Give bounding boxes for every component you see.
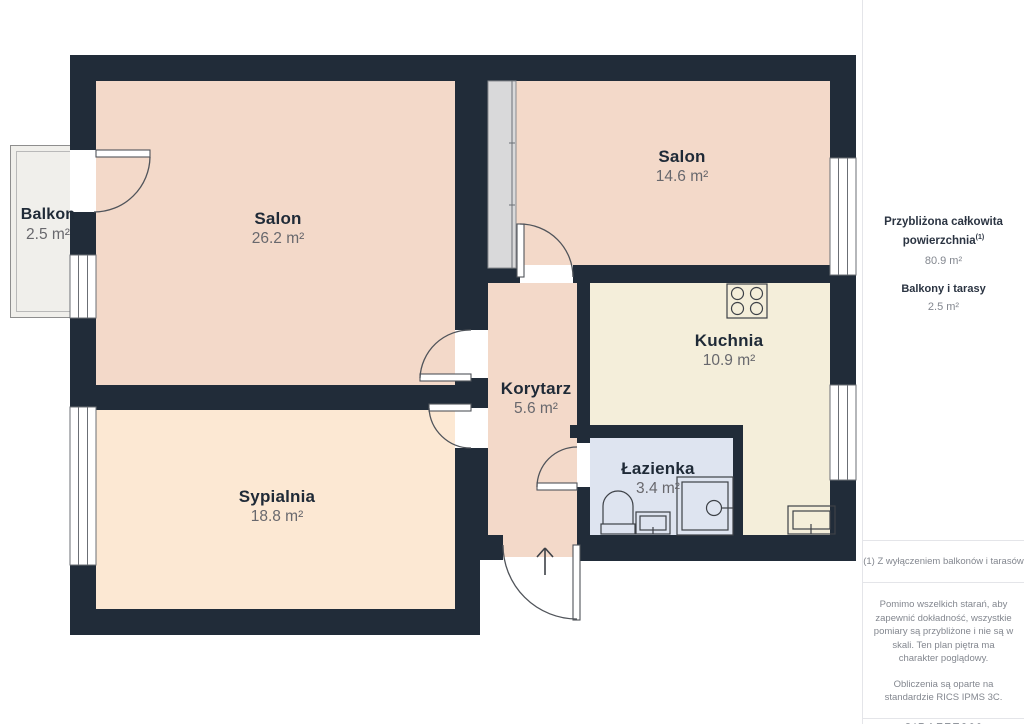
wall-segment	[570, 425, 743, 438]
room-label-korytarz: Korytarz 5.6 m²	[501, 378, 572, 419]
disclaimer-text-1: Pomimo wszelkich starań, aby zapewnić do…	[873, 598, 1014, 666]
floorplan: Salon 26.2 m² Sypialnia 18.8 m² Salon 14…	[0, 0, 862, 724]
total-area-value: 80.9 m²	[871, 255, 1016, 267]
wall-segment	[70, 609, 480, 635]
wall-segment	[573, 265, 830, 283]
wall-segment	[577, 487, 590, 535]
wall-segment	[577, 535, 856, 561]
balconies-label: Balkony i tarasy	[871, 283, 1016, 295]
area-summary: Przybliżona całkowita powierzchnia(1) 80…	[863, 215, 1024, 313]
wall-segment	[488, 265, 520, 283]
room-label-salon-small: Salon 14.6 m²	[656, 146, 709, 187]
summary-sidebar: Przybliżona całkowita powierzchnia(1) 80…	[862, 0, 1024, 724]
disclaimer: Pomimo wszelkich starań, aby zapewnić do…	[863, 583, 1024, 724]
wall-segment	[480, 535, 503, 560]
wall-segment	[455, 378, 488, 408]
wall-segment	[577, 283, 590, 443]
sidebar-divider	[863, 718, 1024, 719]
room-korytarz	[488, 283, 577, 557]
room-label-salon-large: Salon 26.2 m²	[252, 208, 305, 249]
door-opening	[455, 408, 488, 448]
wall-segment	[733, 425, 743, 535]
room-label-balkon: Balkon 2.5 m²	[21, 204, 76, 245]
room-label-sypialnia: Sypialnia 18.8 m²	[239, 486, 315, 527]
door-opening	[70, 150, 96, 212]
wall-segment	[70, 55, 96, 635]
footnote: (1) Z wyłączeniem balkonów i tarasów	[863, 540, 1024, 583]
disclaimer-text-2: Obliczenia są oparte na standardzie RICS…	[873, 678, 1014, 705]
wall-segment	[830, 55, 856, 561]
room-label-lazienka: Łazienka 3.4 m²	[621, 458, 694, 499]
floorplan-page: Salon 26.2 m² Sypialnia 18.8 m² Salon 14…	[0, 0, 1024, 724]
door-opening	[455, 330, 488, 378]
wall-segment	[96, 385, 455, 410]
room-label-kuchnia: Kuchnia 10.9 m²	[695, 330, 763, 371]
wall-segment	[455, 55, 488, 330]
total-area-label: Przybliżona całkowita powierzchnia(1)	[871, 215, 1016, 249]
balconies-value: 2.5 m²	[871, 301, 1016, 313]
wall-segment	[455, 535, 480, 635]
